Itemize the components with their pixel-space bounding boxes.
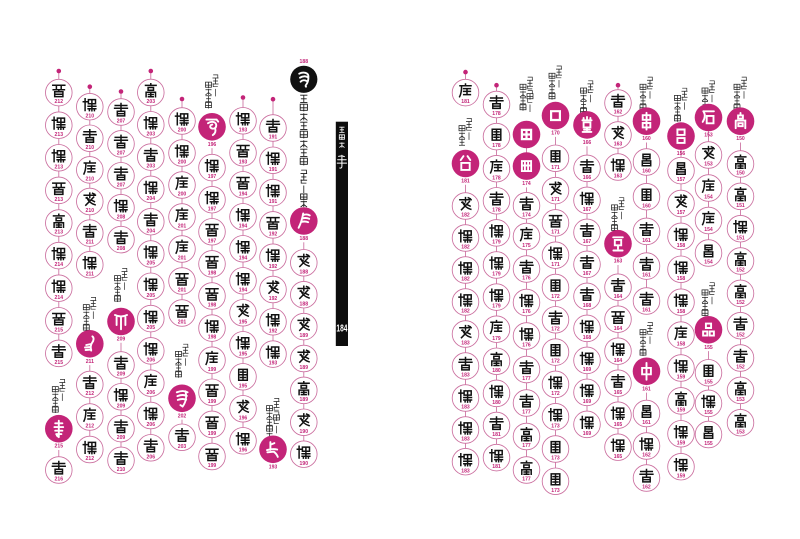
svg-text:161: 161	[642, 308, 651, 314]
svg-text:153: 153	[736, 429, 745, 435]
svg-text:158: 158	[677, 309, 686, 315]
svg-text:180: 180	[492, 368, 501, 374]
svg-text:212: 212	[86, 424, 95, 430]
svg-text:199: 199	[208, 367, 217, 373]
svg-text:162: 162	[614, 110, 623, 116]
svg-text:198: 198	[208, 303, 217, 309]
svg-text:154: 154	[704, 260, 713, 266]
svg-text:167: 167	[583, 271, 592, 277]
svg-text:162: 162	[642, 453, 651, 459]
svg-text:206: 206	[147, 390, 156, 396]
svg-text:169: 169	[583, 399, 592, 405]
svg-text:205: 205	[147, 293, 156, 299]
svg-text:188: 188	[300, 269, 309, 275]
svg-text:201: 201	[178, 288, 187, 294]
svg-text:154: 154	[704, 195, 713, 201]
svg-text:166: 166	[583, 175, 592, 181]
svg-text:153: 153	[736, 397, 745, 403]
svg-text:159: 159	[677, 473, 686, 479]
svg-text:183: 183	[461, 341, 470, 347]
svg-text:197: 197	[208, 174, 217, 180]
svg-text:163: 163	[614, 174, 623, 180]
svg-text:181: 181	[461, 99, 470, 105]
svg-text:194: 194	[239, 223, 248, 229]
svg-text:201: 201	[178, 320, 187, 326]
svg-text:172: 172	[551, 391, 560, 397]
svg-text:178: 178	[492, 175, 501, 181]
svg-text:161: 161	[642, 420, 651, 426]
svg-text:212: 212	[86, 456, 95, 462]
svg-text:215: 215	[55, 327, 64, 333]
svg-text:153: 153	[704, 133, 713, 139]
svg-text:194: 194	[239, 255, 248, 261]
svg-text:188: 188	[300, 236, 309, 242]
svg-text:163: 163	[614, 259, 623, 265]
svg-text:197: 197	[208, 206, 217, 212]
svg-text:200: 200	[178, 128, 187, 134]
svg-text:179: 179	[492, 272, 501, 278]
svg-text:199: 199	[208, 399, 217, 405]
svg-text:192: 192	[269, 232, 278, 238]
svg-text:177: 177	[522, 443, 531, 449]
svg-text:168: 168	[583, 303, 592, 309]
svg-text:171: 171	[551, 197, 560, 203]
svg-text:188: 188	[300, 59, 309, 65]
svg-text:157: 157	[677, 210, 686, 216]
svg-text:169: 169	[583, 367, 592, 373]
svg-text:203: 203	[178, 444, 187, 450]
svg-text:211: 211	[86, 271, 94, 277]
svg-text:178: 178	[492, 207, 501, 213]
svg-text:211: 211	[86, 240, 94, 246]
svg-text:206: 206	[147, 422, 156, 428]
svg-text:213: 213	[55, 230, 64, 236]
svg-text:198: 198	[208, 271, 217, 277]
svg-text:158: 158	[677, 276, 686, 282]
svg-text:194: 194	[239, 287, 248, 293]
svg-text:155: 155	[704, 345, 713, 351]
svg-text:167: 167	[583, 239, 592, 245]
svg-text:204: 204	[147, 228, 156, 234]
svg-text:160: 160	[642, 169, 651, 175]
svg-text:158: 158	[677, 243, 686, 249]
svg-text:171: 171	[551, 230, 560, 236]
svg-text:163: 163	[614, 142, 623, 148]
svg-text:168: 168	[583, 335, 592, 341]
svg-text:215: 215	[55, 444, 64, 450]
svg-text:190: 190	[300, 429, 309, 435]
svg-text:209: 209	[117, 372, 126, 378]
svg-text:214: 214	[55, 295, 64, 301]
svg-text:210: 210	[86, 208, 95, 214]
svg-text:159: 159	[677, 375, 686, 381]
svg-text:207: 207	[117, 182, 126, 188]
svg-text:209: 209	[117, 435, 126, 441]
svg-text:201: 201	[178, 224, 187, 230]
svg-text:174: 174	[522, 212, 531, 218]
svg-text:151: 151	[736, 203, 745, 209]
svg-text:157: 157	[677, 177, 686, 183]
svg-text:174: 174	[522, 181, 531, 187]
svg-text:192: 192	[269, 264, 278, 270]
svg-text:192: 192	[269, 296, 278, 302]
svg-text:211: 211	[86, 359, 94, 365]
svg-text:196: 196	[208, 142, 217, 148]
svg-text:215: 215	[55, 360, 64, 366]
svg-text:165: 165	[614, 454, 623, 460]
svg-text:181: 181	[492, 464, 501, 470]
svg-text:154: 154	[704, 227, 713, 233]
svg-text:209: 209	[117, 337, 126, 343]
svg-text:195: 195	[239, 319, 248, 325]
svg-text:195: 195	[239, 351, 248, 357]
svg-text:189: 189	[300, 365, 309, 371]
svg-text:152: 152	[736, 300, 745, 306]
svg-text:177: 177	[522, 376, 531, 382]
svg-text:196: 196	[239, 447, 248, 453]
svg-text:152: 152	[736, 268, 745, 274]
svg-text:166: 166	[583, 140, 592, 146]
svg-text:183: 183	[461, 468, 470, 474]
svg-text:155: 155	[704, 379, 713, 385]
svg-text:183: 183	[461, 437, 470, 443]
svg-text:203: 203	[147, 131, 156, 137]
svg-text:170: 170	[551, 131, 560, 137]
svg-text:150: 150	[736, 171, 745, 177]
svg-text:210: 210	[117, 467, 126, 473]
svg-text:152: 152	[736, 332, 745, 338]
svg-text:151: 151	[736, 235, 745, 241]
svg-text:201: 201	[178, 256, 187, 262]
svg-text:213: 213	[55, 132, 64, 138]
svg-text:210: 210	[86, 145, 95, 151]
svg-text:207: 207	[117, 119, 126, 125]
svg-text:204: 204	[147, 196, 156, 202]
svg-text:193: 193	[269, 361, 278, 367]
svg-text:199: 199	[208, 431, 217, 437]
svg-text:164: 164	[614, 294, 623, 300]
svg-text:199: 199	[208, 463, 217, 469]
svg-text:191: 191	[269, 167, 278, 173]
svg-text:213: 213	[55, 197, 64, 203]
svg-text:160: 160	[642, 136, 651, 142]
svg-text:188: 188	[300, 301, 309, 307]
svg-text:183: 183	[461, 373, 470, 379]
svg-text:190: 190	[300, 461, 309, 467]
svg-text:191: 191	[269, 199, 278, 205]
svg-text:183: 183	[461, 405, 470, 411]
svg-text:155: 155	[704, 441, 713, 447]
svg-text:210: 210	[86, 113, 95, 119]
svg-text:164: 164	[614, 358, 623, 364]
svg-text:195: 195	[239, 383, 248, 389]
svg-text:203: 203	[147, 99, 156, 105]
svg-text:208: 208	[117, 214, 126, 220]
svg-text:159: 159	[677, 408, 686, 414]
svg-text:173: 173	[551, 456, 560, 462]
svg-text:167: 167	[583, 207, 592, 213]
svg-text:182: 182	[461, 245, 470, 251]
svg-text:177: 177	[522, 410, 531, 416]
svg-text:189: 189	[300, 333, 309, 339]
svg-text:181: 181	[492, 432, 501, 438]
svg-text:176: 176	[522, 276, 531, 282]
svg-text:209: 209	[117, 403, 126, 409]
svg-text:205: 205	[147, 261, 156, 267]
svg-text:153: 153	[704, 162, 713, 168]
svg-text:212: 212	[55, 99, 64, 105]
svg-text:193: 193	[239, 127, 248, 133]
svg-text:184: 184	[336, 322, 347, 334]
svg-text:208: 208	[117, 246, 126, 252]
svg-text:182: 182	[461, 277, 470, 283]
svg-text:161: 161	[642, 238, 651, 244]
svg-text:165: 165	[614, 422, 623, 428]
svg-text:173: 173	[551, 488, 560, 494]
svg-text:194: 194	[239, 191, 248, 197]
svg-text:205: 205	[147, 325, 156, 331]
svg-text:182: 182	[461, 309, 470, 315]
svg-text:182: 182	[461, 213, 470, 219]
svg-text:179: 179	[492, 304, 501, 310]
svg-text:200: 200	[178, 160, 187, 166]
svg-text:179: 179	[492, 336, 501, 342]
svg-text:173: 173	[551, 423, 560, 429]
svg-text:150: 150	[736, 136, 745, 142]
svg-text:161: 161	[642, 273, 651, 279]
svg-text:172: 172	[551, 294, 560, 300]
svg-text:156: 156	[677, 151, 686, 157]
svg-text:193: 193	[239, 159, 248, 165]
svg-text:177: 177	[522, 477, 531, 483]
svg-text:213: 213	[55, 164, 64, 170]
svg-text:171: 171	[551, 262, 560, 268]
svg-text:165: 165	[614, 390, 623, 396]
svg-text:202: 202	[178, 413, 187, 419]
svg-text:212: 212	[86, 391, 95, 397]
svg-text:171: 171	[551, 165, 560, 171]
svg-text:198: 198	[208, 335, 217, 341]
svg-text:206: 206	[147, 454, 156, 460]
svg-text:172: 172	[551, 326, 560, 332]
svg-text:206: 206	[147, 358, 156, 364]
svg-text:162: 162	[642, 485, 651, 491]
svg-text:197: 197	[208, 238, 217, 244]
svg-text:178: 178	[492, 143, 501, 149]
svg-text:181: 181	[461, 179, 470, 185]
svg-text:176: 176	[522, 343, 531, 349]
svg-text:161: 161	[642, 386, 651, 392]
svg-text:180: 180	[492, 400, 501, 406]
svg-text:176: 176	[522, 309, 531, 315]
svg-text:159: 159	[677, 440, 686, 446]
svg-text:189: 189	[300, 397, 309, 403]
svg-text:164: 164	[614, 326, 623, 332]
svg-text:178: 178	[492, 111, 501, 117]
svg-text:175: 175	[522, 243, 531, 249]
svg-text:160: 160	[642, 203, 651, 209]
svg-text:210: 210	[86, 177, 95, 183]
svg-text:196: 196	[239, 415, 248, 421]
svg-text:207: 207	[117, 151, 126, 157]
svg-text:192: 192	[269, 328, 278, 334]
svg-text:155: 155	[704, 410, 713, 416]
svg-text:152: 152	[736, 365, 745, 371]
svg-text:200: 200	[178, 192, 187, 198]
svg-text:193: 193	[269, 464, 278, 470]
svg-text:172: 172	[551, 359, 560, 365]
svg-text:216: 216	[55, 477, 64, 483]
svg-text:203: 203	[147, 164, 156, 170]
svg-text:158: 158	[677, 342, 686, 348]
svg-text:169: 169	[583, 431, 592, 437]
svg-text:179: 179	[492, 240, 501, 246]
svg-text:191: 191	[269, 135, 278, 141]
svg-text:214: 214	[55, 262, 64, 268]
